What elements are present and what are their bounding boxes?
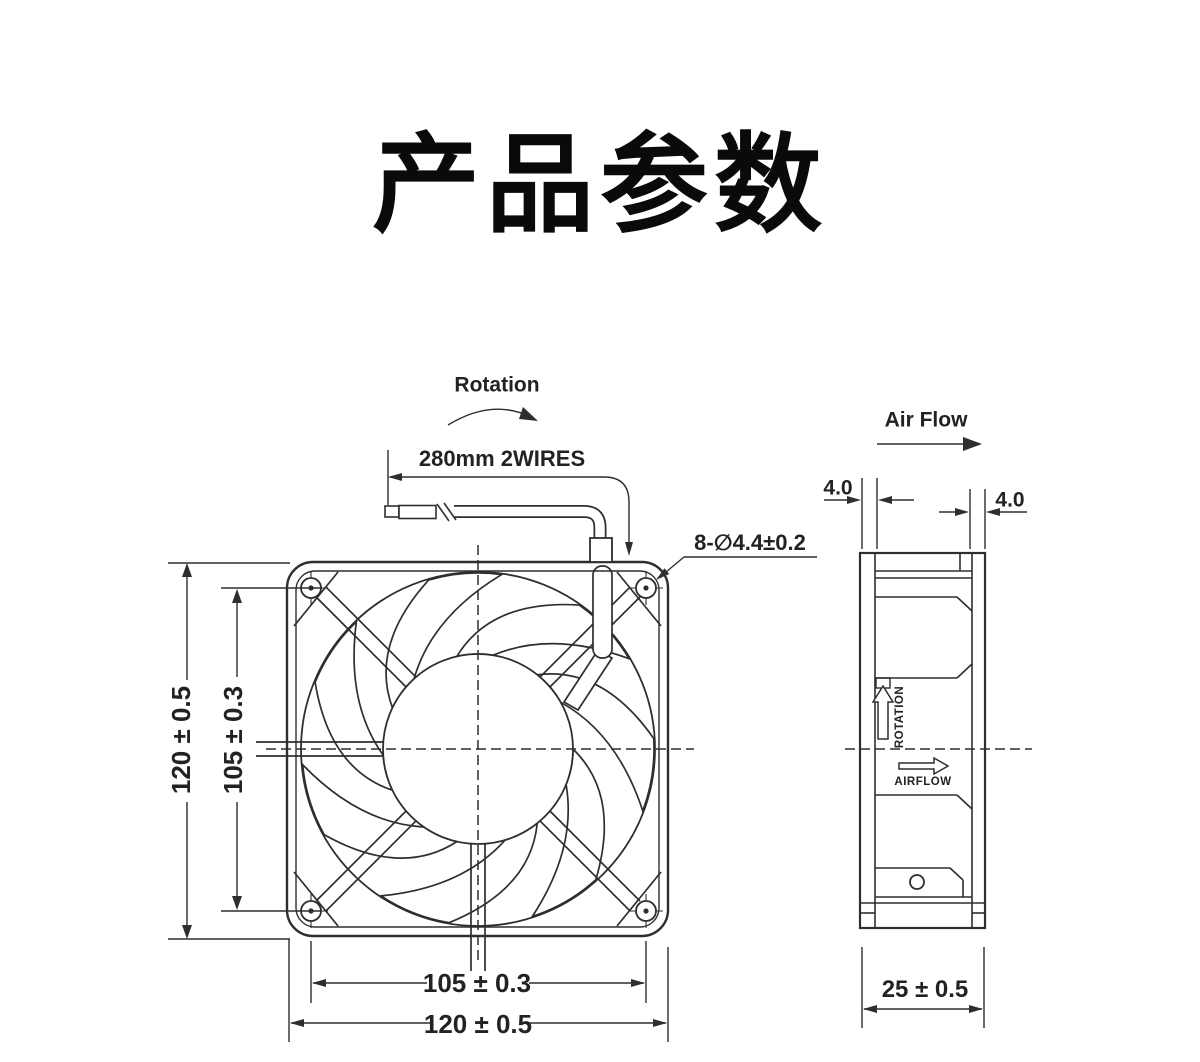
wire-channel — [593, 566, 612, 658]
wire-length-label: 280mm 2WIRES — [419, 448, 585, 470]
fan-technical-drawing: ROTATION AIRFLOW — [0, 0, 1200, 1062]
dim-height-outer-label: 120 ± 0.5 — [168, 686, 194, 794]
rotation-marking-arrow — [873, 686, 893, 739]
fan-side-view: ROTATION AIRFLOW — [845, 553, 1032, 928]
flange-front-label: 4.0 — [823, 478, 852, 499]
air-flow-label: Air Flow — [885, 410, 968, 431]
fan-front-view — [256, 543, 694, 971]
mounting-holes-label: 8-∅4.4±0.2 — [694, 532, 806, 554]
airflow-marking-text: AIRFLOW — [894, 776, 951, 788]
dim-height-holes-label: 105 ± 0.3 — [220, 686, 246, 794]
wire-channel-diagonal — [564, 650, 612, 710]
dim-depth-label: 25 ± 0.5 — [882, 978, 969, 1002]
rotation-label: Rotation — [454, 375, 539, 396]
dim-width-holes-label: 105 ± 0.3 — [423, 970, 531, 996]
rotation-direction-arrow — [448, 409, 531, 425]
wire-strain-relief — [590, 538, 612, 562]
airflow-marking-arrow — [899, 758, 948, 774]
air-flow-arrow — [877, 437, 982, 451]
dim-width-outer-label: 120 ± 0.5 — [424, 1011, 532, 1037]
terminal-screw-hole — [910, 875, 924, 889]
product-parameters-page: 产品参数 — [0, 0, 1200, 1062]
rotation-marking-text: ROTATION — [894, 686, 906, 748]
flange-rear-label: 4.0 — [995, 490, 1024, 511]
